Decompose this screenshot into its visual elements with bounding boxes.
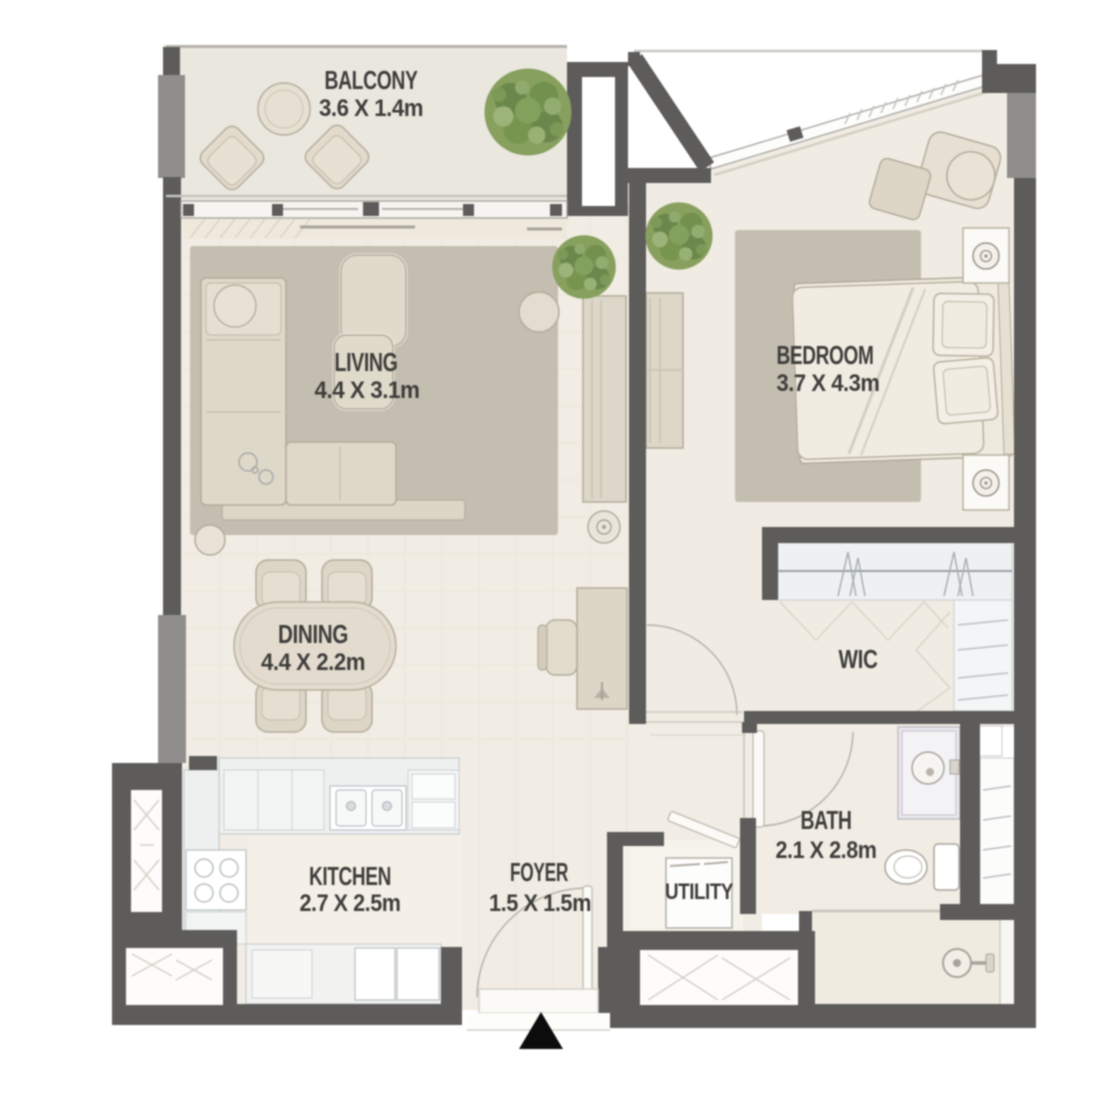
svg-text:BATH: BATH bbox=[801, 805, 852, 835]
svg-text:KITCHEN: KITCHEN bbox=[309, 861, 391, 891]
svg-text:UTILITY: UTILITY bbox=[665, 879, 734, 904]
svg-text:WIC: WIC bbox=[839, 644, 879, 674]
svg-text:BALCONY: BALCONY bbox=[325, 65, 418, 95]
svg-text:3.7 X 4.3m: 3.7 X 4.3m bbox=[777, 370, 880, 397]
svg-text:4.4 X 2.2m: 4.4 X 2.2m bbox=[261, 649, 365, 676]
svg-text:1.5 X 1.5m: 1.5 X 1.5m bbox=[489, 890, 591, 917]
svg-text:LIVING: LIVING bbox=[335, 347, 398, 377]
svg-text:3.6 X 1.4m: 3.6 X 1.4m bbox=[319, 95, 423, 122]
svg-text:4.4 X 3.1m: 4.4 X 3.1m bbox=[315, 377, 420, 404]
svg-text:DINING: DINING bbox=[278, 619, 348, 649]
svg-text:2.1 X 2.8m: 2.1 X 2.8m bbox=[776, 837, 877, 864]
svg-text:FOYER: FOYER bbox=[510, 857, 568, 887]
svg-text:BEDROOM: BEDROOM bbox=[777, 340, 874, 370]
svg-text:2.7 X 2.5m: 2.7 X 2.5m bbox=[300, 890, 401, 917]
